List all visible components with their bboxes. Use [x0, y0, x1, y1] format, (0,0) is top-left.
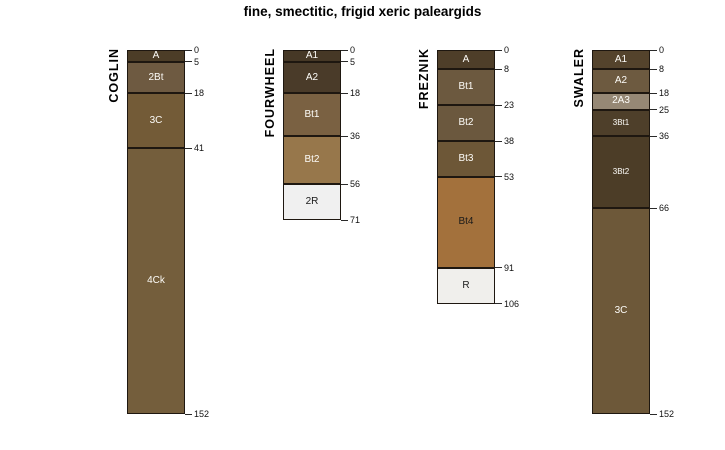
- depth-label: 23: [504, 100, 514, 110]
- depth-label: 18: [659, 88, 669, 98]
- horizon-3c: 3C: [127, 93, 185, 148]
- horizon-label: Bt3: [458, 154, 473, 164]
- depth-tick: [185, 414, 192, 415]
- depth-label: 8: [504, 64, 509, 74]
- chart-title: fine, smectitic, frigid xeric paleargids: [0, 4, 725, 19]
- depth-tick: [341, 61, 348, 62]
- horizon-3c: 3C: [592, 208, 650, 414]
- horizon-label: 2A3: [612, 96, 630, 106]
- depth-label: 66: [659, 203, 669, 213]
- horizon-a: A: [437, 50, 495, 69]
- depth-label: 38: [504, 136, 514, 146]
- horizon-3bt2: 3Bt2: [592, 136, 650, 208]
- profile-name-freznik: FREZNIK: [418, 48, 431, 109]
- depth-tick: [341, 50, 348, 51]
- profile-name-swaler: SWALER: [573, 48, 586, 107]
- horizon-3bt1: 3Bt1: [592, 110, 650, 136]
- horizon-a2: A2: [592, 69, 650, 93]
- horizon-label: A: [153, 51, 160, 61]
- depth-label: 36: [350, 131, 360, 141]
- horizon-label: A2: [306, 73, 318, 83]
- depth-tick: [495, 69, 502, 70]
- depth-tick: [185, 61, 192, 62]
- horizon-a1: A1: [592, 50, 650, 69]
- depth-tick: [495, 176, 502, 177]
- depth-tick: [650, 414, 657, 415]
- depth-label: 91: [504, 263, 514, 273]
- horizon-label: 2Bt: [148, 73, 163, 83]
- horizon-bt3: Bt3: [437, 141, 495, 177]
- horizon-4ck: 4Ck: [127, 148, 185, 414]
- depth-tick: [495, 267, 502, 268]
- horizon-bt1: Bt1: [283, 93, 341, 136]
- depth-tick: [650, 208, 657, 209]
- horizon-r: R: [437, 268, 495, 304]
- depth-tick: [341, 220, 348, 221]
- depth-tick: [341, 184, 348, 185]
- depth-label: 36: [659, 131, 669, 141]
- horizon-label: Bt1: [304, 110, 319, 120]
- profile-name-fourwheel: FOURWHEEL: [264, 48, 277, 137]
- depth-label: 8: [659, 64, 664, 74]
- depth-label: 56: [350, 179, 360, 189]
- horizon-a: A: [127, 50, 185, 62]
- horizon-label: Bt4: [458, 217, 473, 227]
- horizon-label: R: [462, 281, 469, 291]
- depth-tick: [341, 136, 348, 137]
- depth-label: 152: [194, 409, 209, 419]
- horizon-label: 4Ck: [147, 276, 165, 286]
- horizon-2a3: 2A3: [592, 93, 650, 110]
- horizon-label: 3C: [150, 116, 163, 126]
- horizon-label: 2R: [306, 197, 319, 207]
- profile-name-coglin: COGLIN: [108, 48, 121, 103]
- depth-tick: [185, 148, 192, 149]
- depth-label: 106: [504, 299, 519, 309]
- horizon-2bt: 2Bt: [127, 62, 185, 93]
- depth-tick: [495, 50, 502, 51]
- depth-label: 0: [504, 45, 509, 55]
- horizon-label: A2: [615, 76, 627, 86]
- depth-label: 152: [659, 409, 674, 419]
- horizon-label: 3Bt1: [613, 119, 629, 127]
- depth-label: 5: [194, 57, 199, 67]
- depth-label: 0: [659, 45, 664, 55]
- depth-label: 25: [659, 105, 669, 115]
- depth-tick: [650, 93, 657, 94]
- horizon-bt1: Bt1: [437, 69, 495, 105]
- horizon-label: Bt2: [304, 155, 319, 165]
- depth-label: 0: [194, 45, 199, 55]
- depth-tick: [185, 93, 192, 94]
- horizon-label: Bt2: [458, 118, 473, 128]
- depth-label: 0: [350, 45, 355, 55]
- horizon-label: 3Bt2: [613, 168, 629, 176]
- horizon-label: A1: [306, 51, 318, 61]
- depth-tick: [650, 136, 657, 137]
- horizon-a2: A2: [283, 62, 341, 93]
- horizon-2r: 2R: [283, 184, 341, 220]
- depth-label: 41: [194, 143, 204, 153]
- horizon-a1: A1: [283, 50, 341, 62]
- depth-label: 71: [350, 215, 360, 225]
- horizon-bt2: Bt2: [437, 105, 495, 141]
- horizon-bt4: Bt4: [437, 177, 495, 268]
- depth-tick: [341, 93, 348, 94]
- depth-tick: [495, 105, 502, 106]
- soil-profile-chart: fine, smectitic, frigid xeric paleargids…: [0, 0, 725, 450]
- depth-tick: [650, 109, 657, 110]
- depth-tick: [650, 69, 657, 70]
- depth-tick: [495, 303, 502, 304]
- horizon-label: Bt1: [458, 82, 473, 92]
- horizon-label: A1: [615, 55, 627, 65]
- horizon-label: A: [463, 55, 470, 65]
- depth-label: 5: [350, 57, 355, 67]
- depth-tick: [495, 141, 502, 142]
- depth-label: 53: [504, 172, 514, 182]
- depth-label: 18: [194, 88, 204, 98]
- depth-label: 18: [350, 88, 360, 98]
- horizon-bt2: Bt2: [283, 136, 341, 184]
- horizon-label: 3C: [615, 306, 628, 316]
- depth-tick: [650, 50, 657, 51]
- depth-tick: [185, 50, 192, 51]
